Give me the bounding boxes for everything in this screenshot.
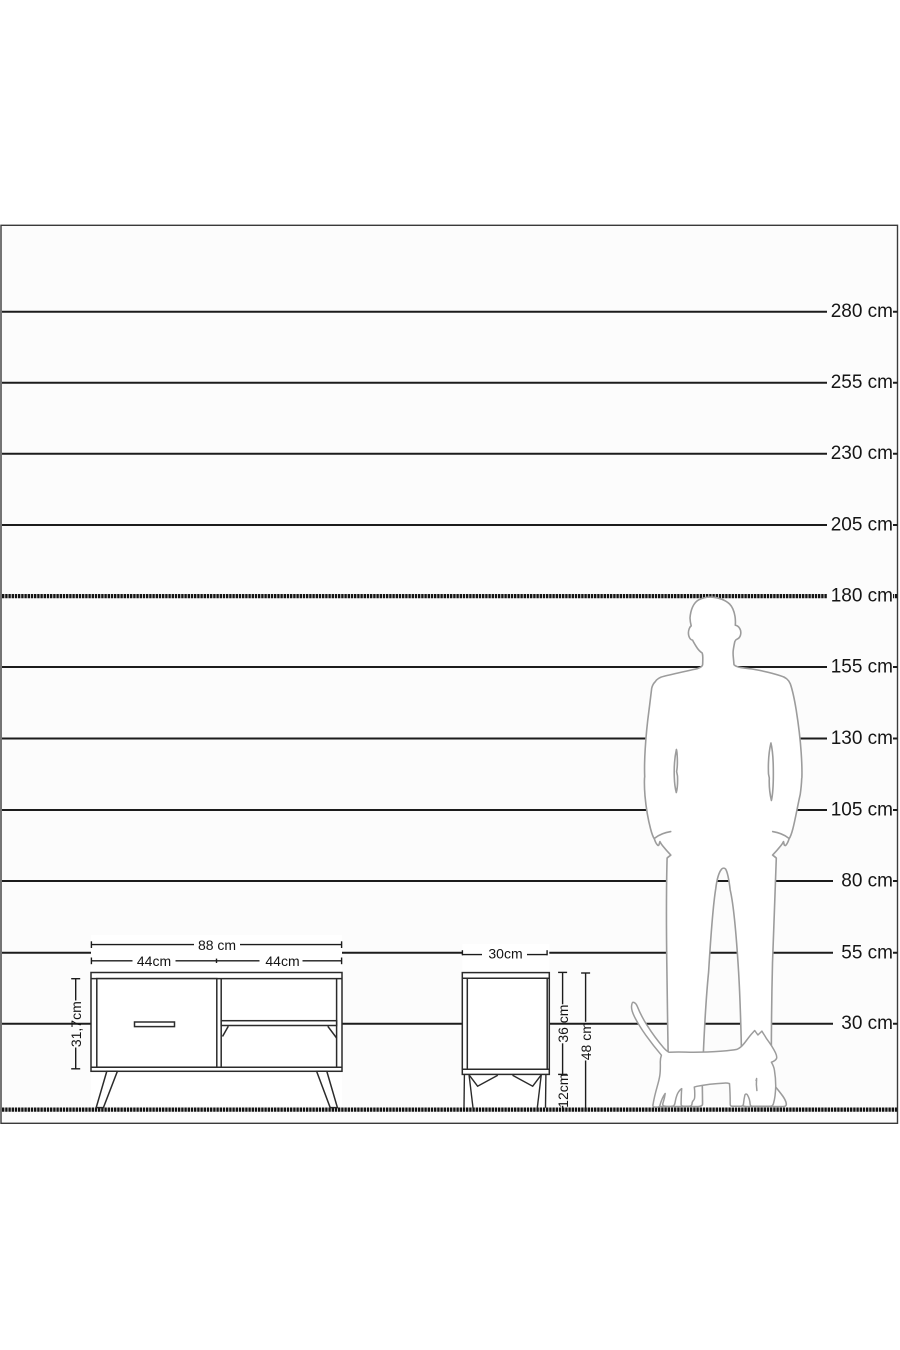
svg-text:36 cm: 36 cm	[555, 1005, 571, 1043]
svg-text:130 cm: 130 cm	[831, 728, 893, 749]
svg-text:48 cm: 48 cm	[578, 1022, 594, 1060]
svg-text:205 cm: 205 cm	[831, 515, 893, 536]
svg-text:12cm: 12cm	[555, 1074, 571, 1108]
svg-text:105 cm: 105 cm	[831, 800, 893, 821]
svg-text:30cm: 30cm	[488, 946, 522, 962]
svg-text:155 cm: 155 cm	[831, 657, 893, 678]
svg-text:30 cm: 30 cm	[841, 1013, 893, 1034]
svg-text:55 cm: 55 cm	[841, 942, 893, 963]
svg-text:44cm: 44cm	[265, 953, 299, 969]
svg-text:44cm: 44cm	[137, 953, 171, 969]
svg-text:80 cm: 80 cm	[841, 871, 893, 892]
svg-text:31,7cm: 31,7cm	[68, 1001, 84, 1047]
svg-text:230 cm: 230 cm	[831, 443, 893, 464]
svg-text:180 cm: 180 cm	[831, 586, 893, 607]
svg-text:280 cm: 280 cm	[831, 301, 893, 322]
svg-text:88 cm: 88 cm	[198, 937, 236, 953]
svg-text:255 cm: 255 cm	[831, 372, 893, 393]
